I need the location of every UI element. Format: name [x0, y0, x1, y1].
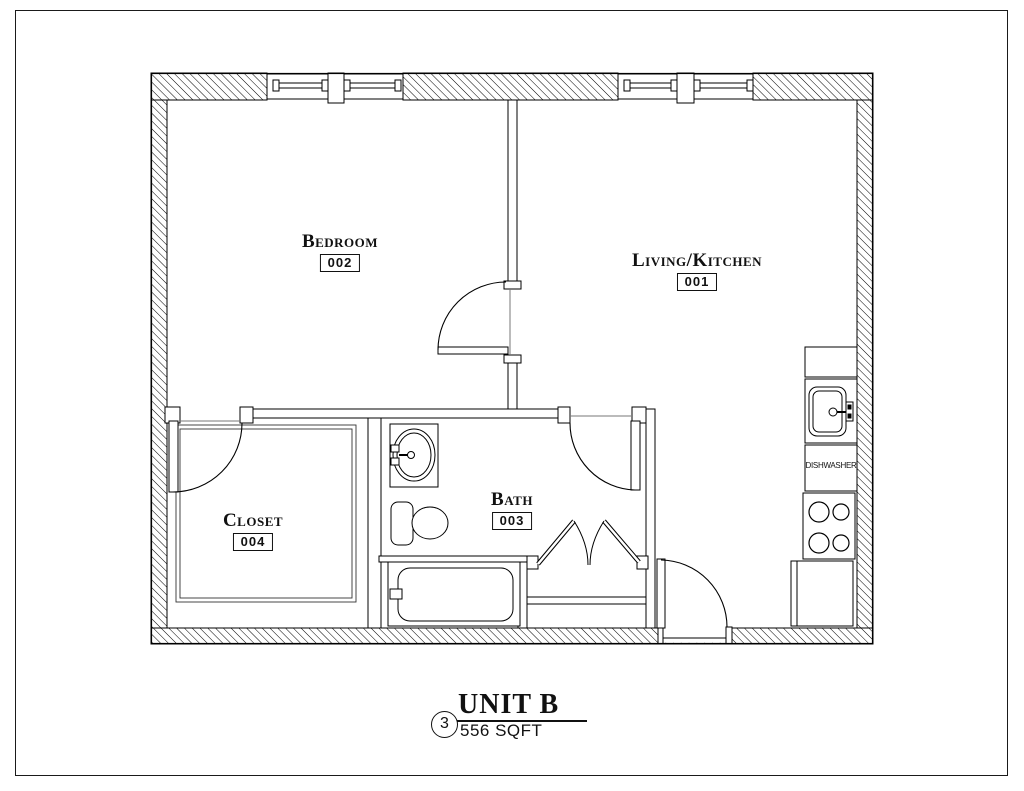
- dishwasher-label: DISHWASHER: [804, 461, 858, 470]
- toilet: [391, 502, 448, 545]
- tub-surround: [379, 556, 527, 562]
- bath-door: [570, 416, 640, 490]
- bathtub: [388, 562, 520, 626]
- faucet-drain: [829, 408, 837, 416]
- burner: [833, 504, 849, 520]
- detail-number-bubble: 3: [431, 711, 458, 738]
- bedroom-door: [438, 282, 510, 355]
- wall-right: [857, 100, 873, 628]
- door-leaf: [169, 421, 178, 492]
- room-label-bedroom: Bedroom 002: [302, 232, 378, 272]
- bath-closet-shelf: [527, 597, 646, 604]
- door-jamb: [240, 407, 253, 423]
- door-leaf: [657, 559, 665, 628]
- burner: [809, 502, 829, 522]
- room-name: Bedroom: [302, 232, 378, 251]
- living-window: [618, 73, 753, 103]
- room-label-closet: Closet 004: [223, 511, 283, 551]
- door-jamb: [504, 281, 521, 289]
- faucet-handle: [391, 445, 399, 452]
- window-mullion: [677, 73, 694, 103]
- room-name: Bath: [491, 490, 533, 509]
- bifold-fold-arc: [574, 521, 588, 565]
- wall-bedroom-living-upper: [508, 100, 517, 282]
- kitchen-fixtures: [791, 347, 857, 626]
- kitchen-counter: [805, 347, 857, 377]
- entry-opening: [658, 627, 732, 644]
- floor-plan-sheet: Bedroom 002 Living/Kitchen 001 Bath 003 …: [0, 0, 1024, 791]
- door-jamb: [504, 355, 521, 363]
- refrigerator: [791, 561, 853, 626]
- bedroom-window: [267, 73, 403, 103]
- door-jamb: [658, 627, 663, 644]
- tub-faucet: [390, 589, 402, 599]
- wall-top-segment: [753, 73, 873, 100]
- wall-bath-north: [253, 409, 558, 418]
- door-swing-arc: [438, 282, 506, 350]
- room-number-tag: 002: [320, 254, 361, 272]
- wall-top-segment: [403, 73, 618, 100]
- wall-closet-bath: [368, 418, 381, 628]
- room-name: Closet: [223, 511, 283, 530]
- toilet-bowl: [412, 507, 448, 539]
- faucet-drain: [408, 452, 415, 459]
- wall-left: [151, 100, 167, 628]
- room-number-tag: 004: [233, 533, 274, 551]
- kitchen-sink: [805, 379, 857, 443]
- wall-bath-east: [646, 409, 655, 628]
- faucet-handle: [391, 458, 399, 465]
- window-glazing: [630, 83, 671, 88]
- room-label-living-kitchen: Living/Kitchen 001: [632, 251, 762, 291]
- door-swing-arc: [173, 423, 242, 492]
- room-label-bath: Bath 003: [491, 490, 533, 530]
- door-swing-arc: [570, 423, 635, 490]
- wall-bottom: [151, 628, 873, 644]
- door-jamb: [558, 407, 570, 423]
- range-stove: [803, 493, 855, 559]
- bifold-closet-doors: [538, 521, 639, 565]
- bifold-fold-arc: [590, 521, 604, 565]
- bathroom-sink: [390, 424, 438, 487]
- door-jamb: [637, 556, 648, 569]
- window-glazing: [279, 83, 322, 88]
- toilet-tank: [391, 502, 413, 545]
- floor-plan-drawing: [0, 0, 1024, 791]
- window-glazing: [700, 83, 747, 88]
- window-mullion: [328, 73, 344, 103]
- unit-area: 556 SQFT: [460, 722, 542, 740]
- unit-title: UNIT B: [458, 691, 559, 719]
- burner: [809, 533, 829, 553]
- door-leaf: [438, 347, 508, 354]
- door-leaf: [631, 421, 640, 490]
- room-number-tag: 001: [677, 273, 718, 291]
- room-number-tag: 003: [492, 512, 533, 530]
- entry-door: [657, 559, 727, 628]
- wall-bedroom-living-lower: [508, 363, 517, 410]
- wall-top-segment: [151, 73, 267, 100]
- tub-basin: [398, 568, 513, 621]
- room-name: Living/Kitchen: [632, 251, 762, 270]
- burner: [833, 535, 849, 551]
- window-glazing: [350, 83, 395, 88]
- door-swing-arc: [661, 560, 727, 627]
- door-jamb: [726, 627, 732, 644]
